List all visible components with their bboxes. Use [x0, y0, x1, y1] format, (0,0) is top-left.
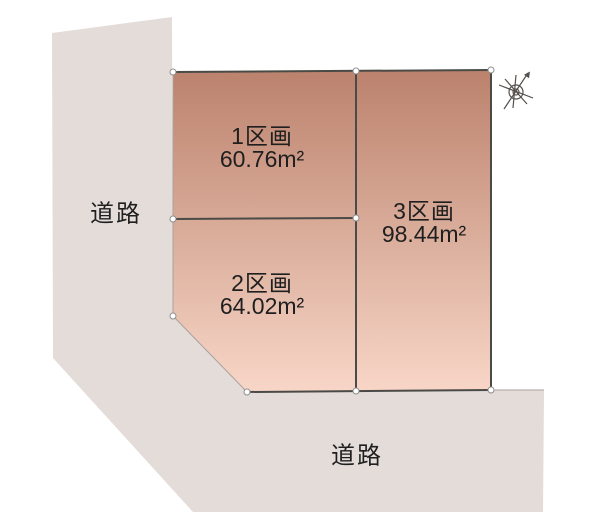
vertex-node [353, 388, 359, 394]
road-bottom-label: 道路 [331, 436, 383, 471]
site-plan-drawing [0, 0, 600, 532]
road-left-label: 道路 [90, 194, 142, 229]
lot-2-label: 2区画 64.02m² [220, 272, 304, 318]
vertex-node [353, 215, 359, 221]
vertex-node [170, 69, 176, 75]
vertex-node [244, 389, 250, 395]
lot-3-area: 98.44m² [382, 223, 466, 246]
lot-1-area: 60.76m² [220, 148, 304, 171]
vertex-node [353, 68, 359, 74]
lot-2-area: 64.02m² [220, 295, 304, 318]
compass-icon [499, 72, 533, 110]
lot-3-name: 3区画 [382, 200, 466, 223]
vertex-node [170, 313, 176, 319]
lot-1-name: 1区画 [220, 125, 304, 148]
lot-2-name: 2区画 [220, 272, 304, 295]
vertex-node [488, 387, 494, 393]
lot-3-label: 3区画 98.44m² [382, 200, 466, 246]
lot-1-label: 1区画 60.76m² [220, 125, 304, 171]
site-plan: 1区画 60.76m² 2区画 64.02m² 3区画 98.44m² 道路 道… [0, 0, 600, 532]
vertex-node [488, 67, 494, 73]
vertex-node [170, 216, 176, 222]
